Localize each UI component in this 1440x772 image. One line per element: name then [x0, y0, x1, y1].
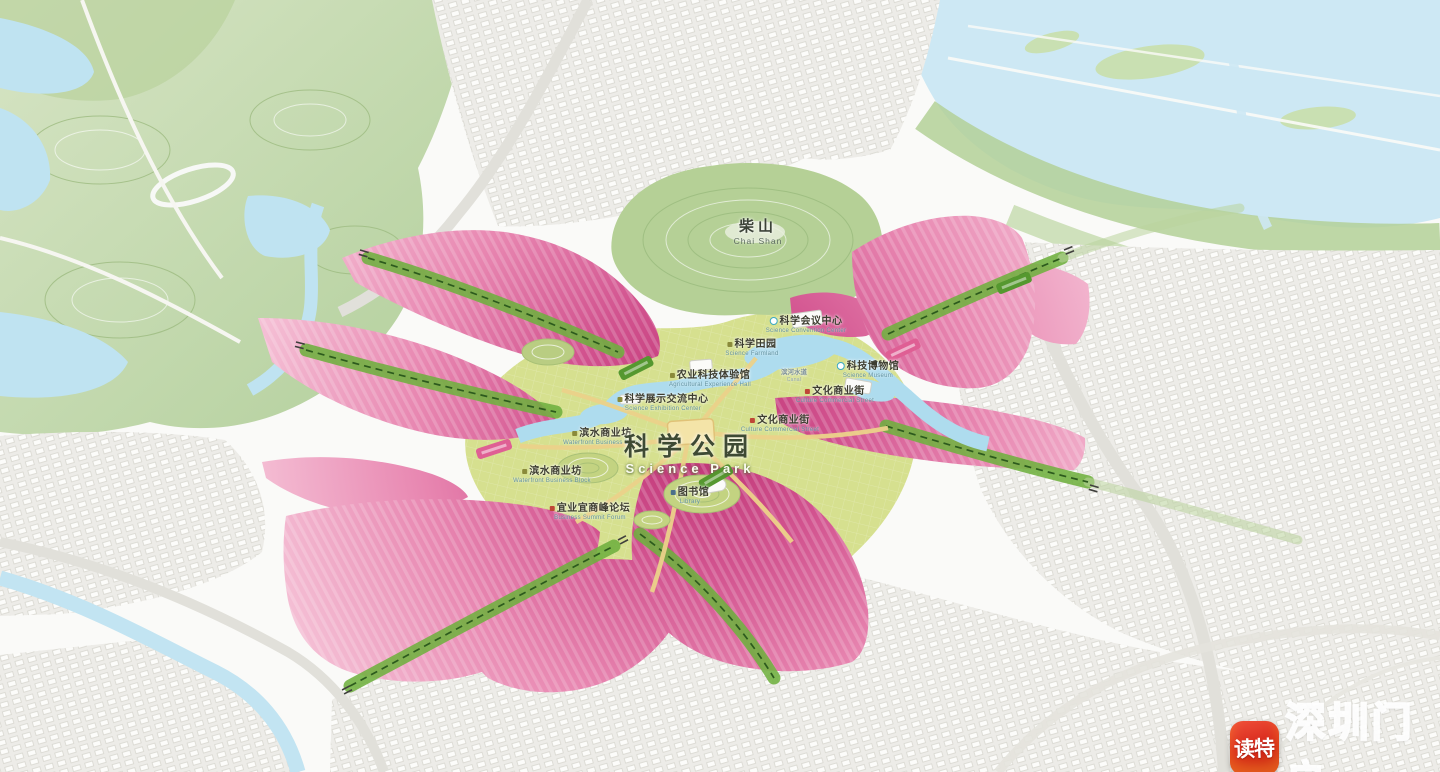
- watermark: 读特 深圳门户: [1230, 690, 1440, 772]
- central-plaza: [667, 418, 715, 445]
- dute-logo-icon: 读特: [1230, 721, 1279, 772]
- masterplan-map: 柴山 Chai Shan 科学会议中心 Science Convention C…: [0, 0, 1440, 772]
- watermark-site-text: 深圳门户: [1286, 690, 1440, 772]
- map-artwork: [0, 0, 1440, 772]
- chai-shan-hill: [611, 163, 882, 315]
- dute-logo-text: 读特: [1234, 732, 1275, 763]
